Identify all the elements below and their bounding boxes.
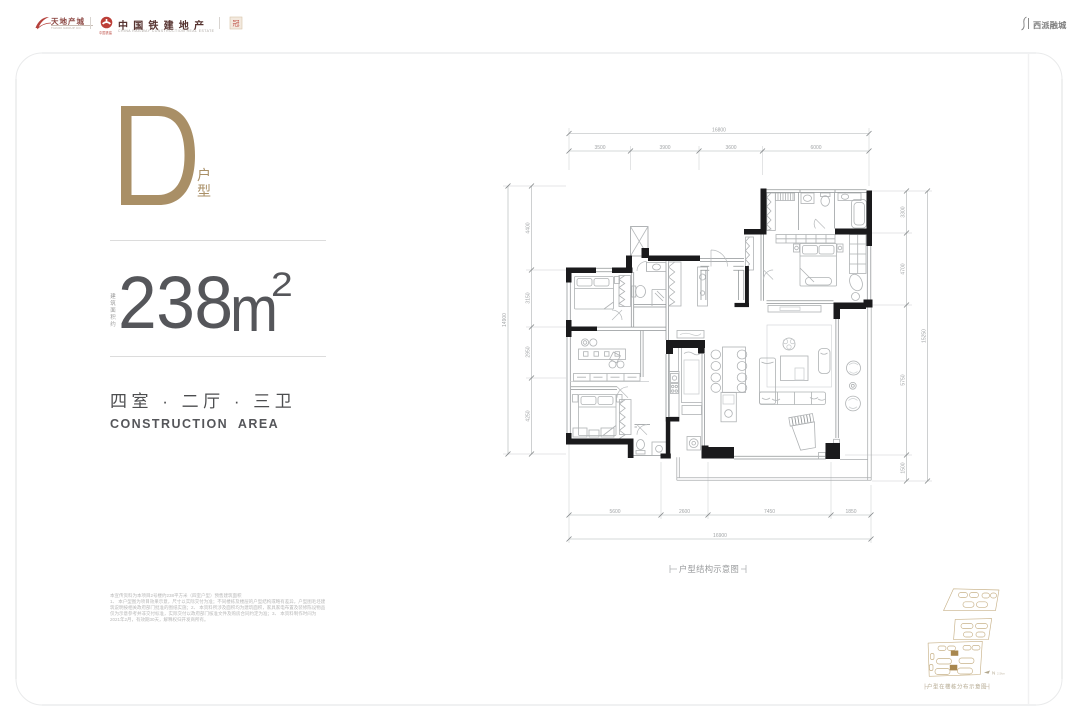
svg-text:3900: 3900 [659, 145, 670, 151]
svg-text:6000: 6000 [810, 145, 821, 151]
svg-text:2950: 2950 [526, 346, 532, 357]
svg-text:5600: 5600 [609, 509, 620, 515]
svg-text:3500: 3500 [594, 145, 605, 151]
svg-text:户型在楼栋分布示意图: 户型在楼栋分布示意图 [927, 683, 987, 691]
svg-text:16900: 16900 [713, 533, 727, 539]
svg-text:2.5km: 2.5km [997, 672, 1006, 676]
svg-text:5750: 5750 [901, 374, 907, 385]
svg-text:4700: 4700 [901, 263, 907, 274]
svg-text:4400: 4400 [526, 222, 532, 233]
svg-text:3300: 3300 [901, 206, 907, 217]
svg-text:4250: 4250 [526, 410, 532, 421]
svg-text:户型结构示意图: 户型结构示意图 [679, 564, 739, 574]
svg-text:15250: 15250 [922, 329, 928, 343]
svg-text:7450: 7450 [764, 509, 775, 515]
svg-text:1850: 1850 [845, 509, 856, 515]
svg-text:1500: 1500 [901, 462, 907, 473]
svg-text:16800: 16800 [712, 128, 726, 134]
svg-text:3600: 3600 [725, 145, 736, 151]
svg-text:14900: 14900 [502, 313, 508, 327]
svg-text:N: N [992, 671, 995, 676]
svg-text:2600: 2600 [679, 509, 690, 515]
svg-text:3150: 3150 [526, 292, 532, 303]
